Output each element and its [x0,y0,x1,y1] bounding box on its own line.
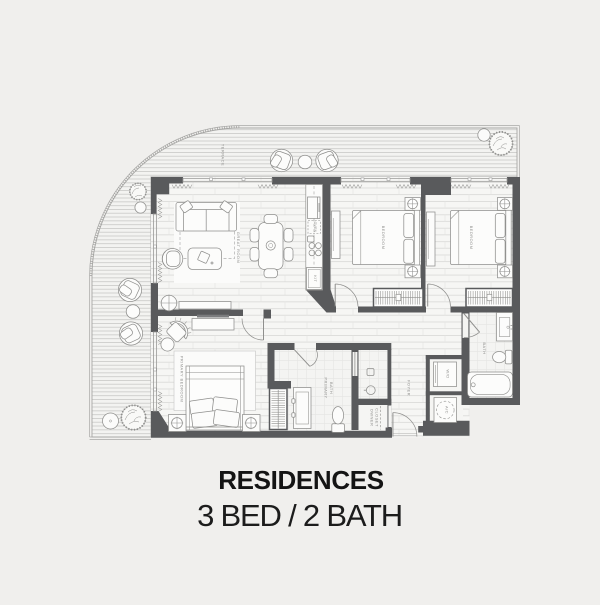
svg-text:RESIDENCES: RESIDENCES [218,465,384,495]
svg-text:BEDROOM: BEDROOM [381,226,386,250]
svg-text:A/C: A/C [444,406,449,414]
svg-text:3 BED / 2 BATH: 3 BED / 2 BATH [197,498,402,533]
svg-text:OWNER: OWNER [370,409,375,427]
svg-text:OVEN: OVEN [313,222,317,233]
svg-text:KIT: KIT [313,275,317,282]
svg-text:FOYER: FOYER [407,380,412,396]
svg-text:CLOSET: CLOSET [375,408,380,427]
svg-text:BEDROOM: BEDROOM [469,226,474,250]
svg-text:TERRACE: TERRACE [221,144,226,166]
svg-text:BATH: BATH [329,382,334,394]
svg-text:W/D: W/D [446,369,451,378]
svg-text:GREAT ROOM: GREAT ROOM [236,232,241,263]
svg-text:PRIMARY BEDROOM: PRIMARY BEDROOM [180,356,185,403]
svg-text:PRIMARY: PRIMARY [324,377,329,398]
svg-text:BATH: BATH [482,342,487,354]
